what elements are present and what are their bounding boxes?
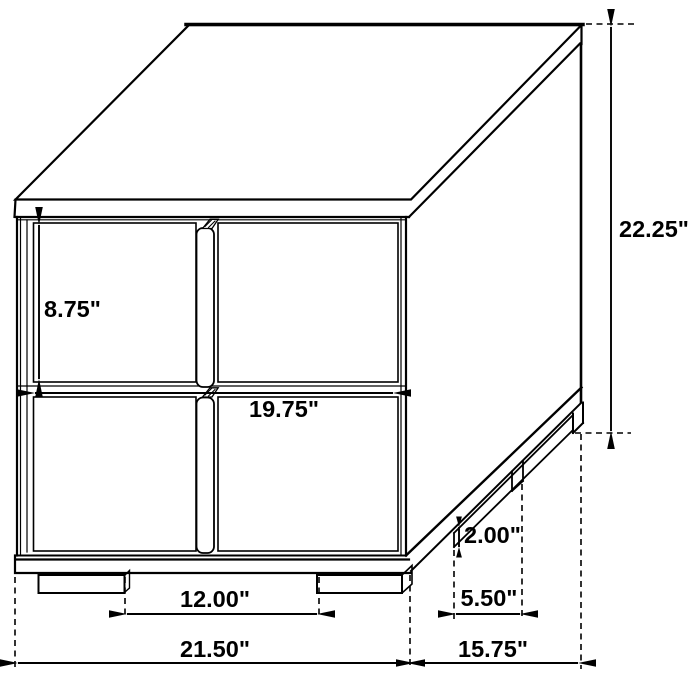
dimension-label-side-leg-spacing: 5.50" [461, 585, 518, 611]
handle-lower [197, 398, 215, 554]
background [0, 0, 700, 700]
dimension-label-drawer-width: 19.75" [249, 396, 319, 422]
diagram-canvas: 8.75"22.25"19.75"2.00"5.50"12.00"21.50"1… [0, 0, 700, 700]
dimension-label-overall-depth: 15.75" [458, 636, 528, 662]
dimension-label-overall-width: 21.50" [180, 636, 250, 662]
dimension-label-overall-height: 22.25" [619, 216, 689, 242]
dimension-label-front-leg-spacing: 12.00" [180, 586, 250, 612]
dimension-label-drawer-height: 8.75" [44, 296, 101, 322]
dimension-label-leg-height: 2.00" [464, 522, 521, 548]
nightstand-dimension-diagram: 8.75"22.25"19.75"2.00"5.50"12.00"21.50"1… [0, 0, 700, 700]
handle-upper [197, 228, 215, 387]
